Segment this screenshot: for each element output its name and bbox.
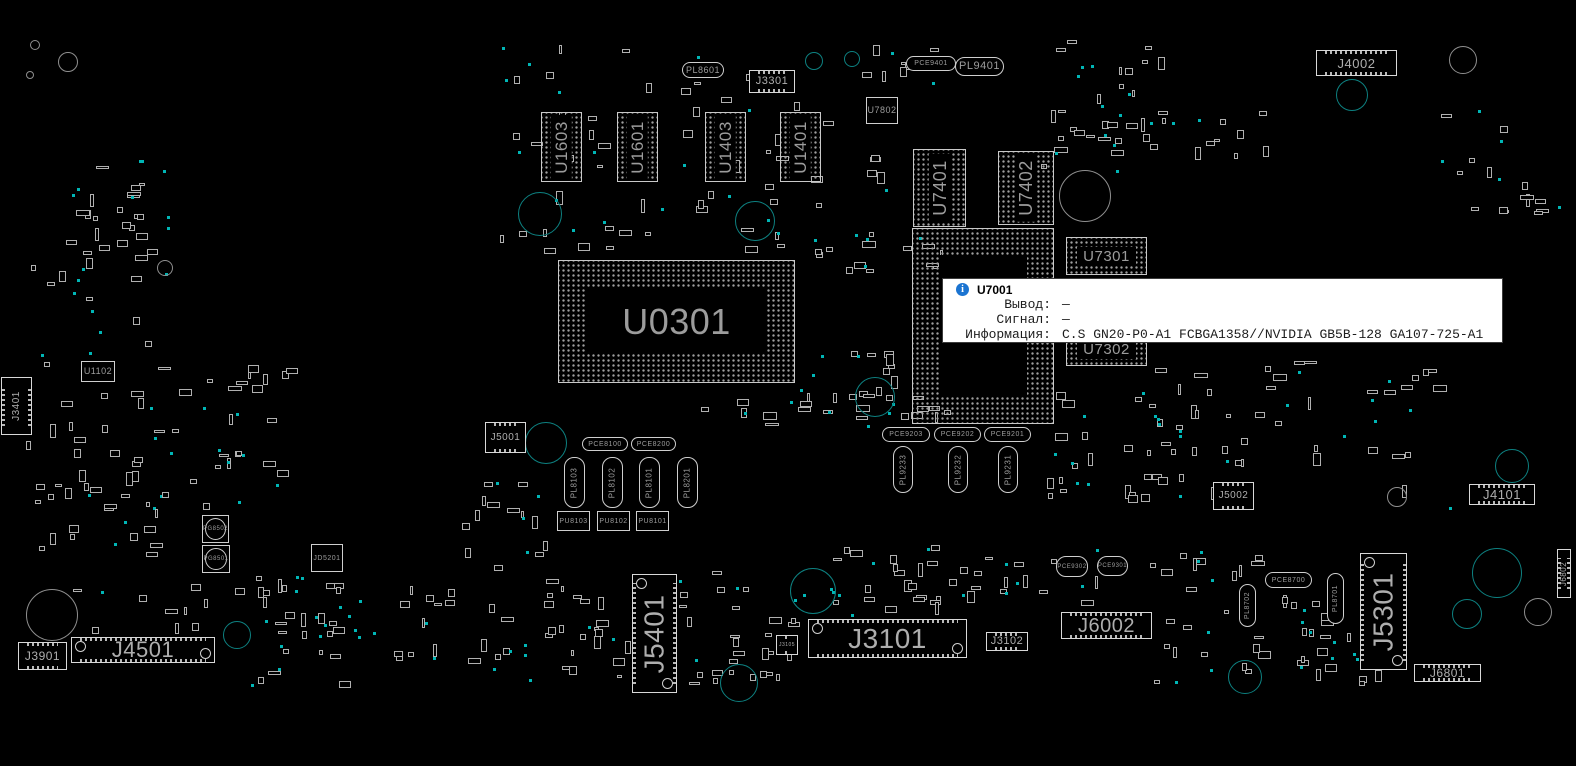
component-label: PCE8700 [1272, 577, 1305, 584]
mounting-hole [1495, 449, 1529, 483]
via-dot [866, 238, 869, 241]
component-pu8102[interactable]: PU8102 [597, 511, 630, 531]
component-u1601[interactable]: U1601 [617, 112, 658, 182]
smd-component [1375, 670, 1382, 682]
info-icon: i [956, 283, 969, 296]
smd-component [1048, 493, 1054, 499]
component-label: PL9401 [959, 61, 1000, 72]
smd-component [573, 595, 582, 599]
via-dot [1172, 122, 1175, 125]
smd-component [514, 76, 520, 83]
component-label: J3301 [756, 76, 788, 87]
smd-component [184, 607, 188, 615]
mounting-hole [223, 621, 251, 649]
smd-component [1275, 421, 1283, 426]
smd-component [1155, 368, 1166, 373]
smd-component [1039, 590, 1049, 594]
smd-component [913, 597, 925, 602]
smd-component [518, 482, 528, 487]
component-j6801[interactable]: J6801 [1414, 664, 1481, 682]
via-dot [679, 580, 682, 583]
component-pl8102[interactable]: PL8102 [602, 457, 623, 508]
component-label: U1403 [715, 115, 736, 180]
smd-component [866, 269, 874, 273]
via-dot [502, 47, 505, 50]
component-u1603[interactable]: U1603 [541, 112, 582, 182]
component-u7802[interactable]: U7802 [866, 97, 898, 124]
smd-component [1195, 147, 1200, 160]
component-u7301[interactable]: U7301 [1066, 237, 1147, 275]
via-dot [1441, 160, 1444, 163]
smd-component [146, 502, 149, 508]
smd-component [1316, 669, 1321, 681]
component-pl9232[interactable]: PL9232 [948, 446, 968, 493]
smd-component [535, 552, 545, 557]
smd-component [50, 424, 56, 437]
smd-component [1183, 625, 1192, 630]
via-dot [493, 668, 496, 671]
via-dot [661, 208, 664, 211]
component-pl9231[interactable]: PL9231 [998, 446, 1018, 493]
via-dot [814, 239, 817, 242]
via-dot [1198, 119, 1201, 122]
via-dot [77, 188, 80, 191]
component-label: J5401 [641, 594, 669, 673]
via-dot [358, 636, 361, 639]
smd-component [882, 71, 886, 82]
smd-component [110, 450, 119, 456]
smd-component [1194, 373, 1208, 378]
smd-component [886, 354, 894, 366]
smd-component [1051, 110, 1056, 123]
component-u7401[interactable]: U7401 [913, 149, 966, 227]
smd-component [1171, 449, 1176, 454]
smd-component [1150, 563, 1156, 568]
via-dot [736, 587, 739, 590]
via-dot [227, 461, 230, 464]
smd-component [546, 72, 553, 79]
via-dot [354, 629, 357, 632]
via-dot [1113, 144, 1116, 147]
component-label: PL8101 [646, 467, 654, 498]
via-dot [295, 590, 298, 593]
via-dot [728, 195, 731, 198]
mounting-hole [518, 192, 562, 236]
component-label: U0301 [616, 302, 737, 342]
smd-component [481, 639, 487, 652]
smd-component [1312, 601, 1320, 607]
via-dot [537, 495, 540, 498]
via-dot [265, 620, 268, 623]
component-pu8101[interactable]: PU8101 [636, 511, 669, 531]
smd-component [606, 246, 614, 250]
smd-component [137, 214, 145, 221]
via-dot [154, 437, 157, 440]
via-dot [1211, 579, 1214, 582]
via-dot [167, 216, 170, 219]
component-j5401[interactable]: J5401 [632, 574, 677, 693]
component-pg8501[interactable]: PG8501 [202, 545, 230, 573]
component-pce8200[interactable]: PCE8200 [631, 437, 676, 451]
via-dot [339, 606, 342, 609]
smd-component [1125, 68, 1133, 75]
smd-component [74, 437, 86, 443]
component-j4002[interactable]: J4002 [1316, 50, 1397, 76]
smd-component [1166, 619, 1175, 624]
component-u1401[interactable]: U1401 [780, 112, 821, 182]
smd-component [918, 563, 923, 577]
via-dot [800, 389, 803, 392]
mounting-hole [735, 201, 775, 241]
smd-component [1214, 139, 1220, 142]
smd-component [482, 496, 486, 505]
smd-component [1158, 57, 1165, 70]
mounting-hole [805, 52, 823, 70]
via-dot [1104, 134, 1107, 137]
component-pl8702[interactable]: PL8702 [1239, 584, 1256, 627]
smd-component [267, 418, 277, 423]
smd-component [1144, 474, 1152, 480]
component-j3401[interactable]: J3401 [1, 377, 32, 435]
via-dot [927, 548, 930, 551]
smd-component [1150, 144, 1158, 150]
smd-component [484, 482, 493, 486]
component-pce9201[interactable]: PCE9201 [984, 427, 1031, 442]
via-dot [41, 354, 44, 357]
component-j5001[interactable]: J5001 [485, 422, 526, 453]
component-label: PCE8100 [588, 441, 621, 448]
smd-component [133, 317, 139, 325]
component-jd5201[interactable]: JD5201 [311, 544, 343, 572]
component-label: U7301 [1077, 247, 1136, 266]
via-dot [324, 624, 327, 627]
component-pce9203[interactable]: PCE9203 [882, 427, 930, 442]
smd-component [99, 245, 111, 251]
component-pl9233[interactable]: PL9233 [893, 446, 913, 493]
component-j4101[interactable]: J4101 [1469, 484, 1535, 505]
component-pl8103[interactable]: PL8103 [564, 457, 585, 508]
smd-component [717, 587, 725, 594]
smd-component [1384, 390, 1396, 395]
component-pu8103[interactable]: PU8103 [557, 511, 590, 531]
smd-component [336, 587, 341, 594]
via-dot [301, 577, 304, 580]
smd-component [1320, 635, 1331, 639]
via-dot [572, 229, 575, 232]
smd-component [263, 461, 276, 467]
via-dot [524, 644, 527, 647]
smd-component [96, 166, 109, 169]
component-label: U7802 [867, 106, 896, 115]
component-j6002[interactable]: J6002 [1061, 612, 1152, 639]
via-dot [505, 79, 508, 82]
smd-component [1176, 425, 1183, 430]
via-dot [1298, 371, 1301, 374]
smd-component [791, 618, 796, 624]
smd-component [1206, 141, 1215, 146]
smd-component [885, 606, 897, 613]
smd-component [765, 633, 772, 636]
smd-component [1347, 633, 1351, 642]
smd-component [931, 545, 940, 551]
smd-component [513, 133, 520, 140]
smd-component [1317, 648, 1328, 655]
smd-component [1304, 361, 1317, 364]
smd-component [1145, 46, 1152, 49]
smd-component [318, 613, 326, 625]
component-j3301[interactable]: J3301 [749, 70, 795, 93]
smd-component [1535, 199, 1546, 204]
via-dot [1200, 551, 1203, 554]
smd-component [798, 407, 811, 412]
via-dot [296, 576, 299, 579]
smd-component [1126, 123, 1139, 129]
smd-component [864, 597, 875, 602]
smd-component [1522, 182, 1529, 190]
smd-component [26, 441, 31, 450]
via-dot [280, 645, 283, 648]
smd-component [571, 650, 574, 656]
smd-component [302, 631, 307, 639]
smd-component [598, 143, 611, 149]
smd-component [121, 494, 130, 498]
smd-component [1294, 361, 1304, 365]
component-j6802[interactable]: J6802 [1557, 549, 1571, 598]
smd-component [985, 557, 993, 561]
smd-component [1095, 576, 1098, 589]
board-hole [30, 40, 40, 50]
smd-component [175, 623, 178, 634]
component-label: PL8702 [1244, 592, 1251, 619]
via-dot [821, 355, 824, 358]
smd-component [150, 543, 163, 549]
smd-component [1047, 478, 1054, 490]
smd-component [92, 627, 99, 634]
component-pce9301[interactable]: PCE9301 [1097, 556, 1128, 576]
component-j5002[interactable]: J5002 [1213, 482, 1254, 510]
smd-component [104, 504, 116, 509]
smd-component [544, 601, 554, 608]
smd-component [329, 621, 337, 626]
smd-component [1178, 384, 1181, 394]
smd-component [301, 613, 306, 626]
component-label: PL8601 [686, 66, 720, 75]
smd-component [39, 546, 45, 551]
smd-component [1056, 48, 1067, 53]
smd-component [468, 658, 481, 664]
smd-component [1253, 644, 1261, 653]
component-pl8701[interactable]: PL8701 [1327, 573, 1344, 624]
component-pce9401[interactable]: PCE9401 [906, 56, 956, 71]
smd-component [862, 72, 872, 78]
smd-component [737, 399, 749, 406]
smd-component [131, 276, 142, 283]
smd-component [867, 353, 876, 357]
via-dot [496, 482, 499, 485]
smd-component [1441, 114, 1452, 118]
smd-component [330, 654, 341, 659]
component-label: JD5201 [313, 555, 340, 562]
via-dot [1371, 399, 1374, 402]
smd-component [844, 547, 849, 554]
smd-component [165, 609, 179, 614]
smd-component [263, 597, 267, 608]
via-dot [1331, 657, 1334, 660]
component-j3105[interactable]: J3105 [776, 635, 798, 655]
component-j3101[interactable]: J3101 [808, 619, 967, 658]
via-dot [319, 635, 322, 638]
component-label: J3101 [848, 625, 927, 653]
component-j3901[interactable]: J3901 [18, 642, 67, 670]
component-pce9302[interactable]: PCE9302 [1056, 556, 1088, 577]
component-label: J4002 [1338, 57, 1376, 70]
component-label: U7402 [1015, 154, 1037, 222]
smd-component [697, 672, 703, 678]
component-label: J3102 [991, 636, 1023, 647]
smd-component [70, 534, 75, 540]
board-hole [26, 589, 78, 641]
smd-component [559, 625, 564, 634]
via-dot [203, 407, 206, 410]
via-dot [790, 401, 793, 404]
smd-component [1401, 385, 1413, 390]
component-u7402[interactable]: U7402 [998, 151, 1054, 225]
smd-component [426, 595, 434, 601]
via-dot [1374, 420, 1377, 423]
smd-component [73, 589, 82, 592]
via-dot [1081, 66, 1084, 69]
smd-component [547, 593, 553, 599]
smd-component [1302, 628, 1307, 636]
component-j4501[interactable]: J4501 [71, 637, 215, 663]
smd-component [1111, 150, 1124, 156]
via-dot [1016, 582, 1019, 585]
pcb-boardview-canvas[interactable]: U0301U7001U1603U1601U1403U1401U7401U7402… [0, 0, 1576, 766]
component-pl8201[interactable]: PL8201 [677, 457, 698, 508]
via-dot [1150, 122, 1153, 125]
smd-component [433, 644, 437, 657]
component-j5301[interactable]: J5301 [1360, 553, 1407, 670]
component-label: PG8501 [203, 556, 228, 562]
component-label: U1601 [627, 115, 648, 180]
smd-component [95, 228, 99, 240]
component-pce9202[interactable]: PCE9202 [934, 427, 981, 442]
component-pg8502[interactable]: PG8502 [202, 515, 229, 543]
smd-component [1367, 390, 1378, 394]
smd-component [1291, 602, 1297, 609]
component-label: J6802 [1560, 561, 1568, 585]
component-u1102[interactable]: U1102 [81, 361, 115, 382]
smd-component [1158, 477, 1168, 485]
smd-component [44, 362, 49, 366]
via-dot [1500, 140, 1503, 143]
component-label: PL9233 [899, 454, 907, 485]
smd-component [935, 602, 939, 615]
via-dot [1179, 430, 1182, 433]
via-dot [1081, 585, 1084, 588]
component-pl9401[interactable]: PL9401 [955, 57, 1004, 76]
smd-component [708, 191, 713, 200]
smd-component [613, 658, 624, 666]
smd-component [285, 612, 295, 619]
smd-component [48, 494, 54, 500]
component-pl8101[interactable]: PL8101 [639, 457, 660, 508]
smd-component [1147, 450, 1151, 457]
smd-component [1273, 374, 1287, 381]
via-dot [1210, 669, 1213, 672]
smd-component [286, 368, 298, 374]
component-label: PL8201 [684, 467, 692, 498]
component-label: PL8102 [609, 467, 617, 498]
smd-component [1060, 489, 1068, 493]
component-u1403[interactable]: U1403 [705, 112, 746, 182]
smd-component [1186, 587, 1197, 593]
component-pce8700[interactable]: PCE8700 [1265, 572, 1312, 588]
smd-component [1055, 433, 1068, 441]
component-u0301[interactable]: U0301 [558, 260, 795, 383]
smd-component [1258, 651, 1271, 659]
smd-component [1239, 565, 1242, 577]
smd-component [1232, 571, 1237, 581]
smd-component [930, 48, 939, 52]
via-dot [170, 452, 173, 455]
smd-component [762, 648, 769, 660]
smd-component [462, 523, 470, 529]
smd-component [1234, 153, 1239, 158]
smd-component [532, 516, 537, 529]
via-dot [518, 151, 521, 154]
via-dot [1157, 418, 1160, 421]
component-pl8601[interactable]: PL8601 [682, 62, 724, 78]
smd-component [765, 423, 779, 426]
via-dot [82, 268, 85, 271]
smd-component [144, 526, 156, 533]
component-label: J6801 [1430, 667, 1465, 679]
smd-component [339, 681, 351, 688]
smd-component [83, 251, 92, 255]
smd-component [949, 579, 958, 586]
mounting-hole [1452, 599, 1482, 629]
component-pce8100[interactable]: PCE8100 [582, 437, 628, 451]
smd-component [1192, 447, 1197, 457]
smd-component [1201, 652, 1208, 657]
smd-component [69, 422, 74, 431]
smd-component [594, 636, 602, 649]
smd-component [856, 416, 868, 420]
smd-component [494, 565, 503, 572]
smd-component [1067, 40, 1077, 44]
smd-component [138, 398, 144, 409]
smd-component [1500, 126, 1508, 133]
smd-component [139, 183, 146, 186]
smd-component [1499, 207, 1508, 214]
smd-component [69, 525, 79, 533]
smd-component [90, 487, 102, 493]
smd-component [158, 367, 171, 370]
component-label: PCE8200 [637, 441, 670, 448]
smd-component [595, 629, 603, 637]
smd-component [865, 585, 871, 593]
component-j3102[interactable]: J3102 [986, 632, 1028, 651]
smd-component [1058, 136, 1065, 142]
smd-component [646, 83, 652, 93]
smd-component [1173, 647, 1177, 658]
component-label: J3401 [12, 391, 22, 421]
smd-component [1162, 118, 1165, 124]
via-dot [885, 189, 888, 192]
via-dot [139, 160, 142, 163]
smd-component [139, 595, 147, 602]
